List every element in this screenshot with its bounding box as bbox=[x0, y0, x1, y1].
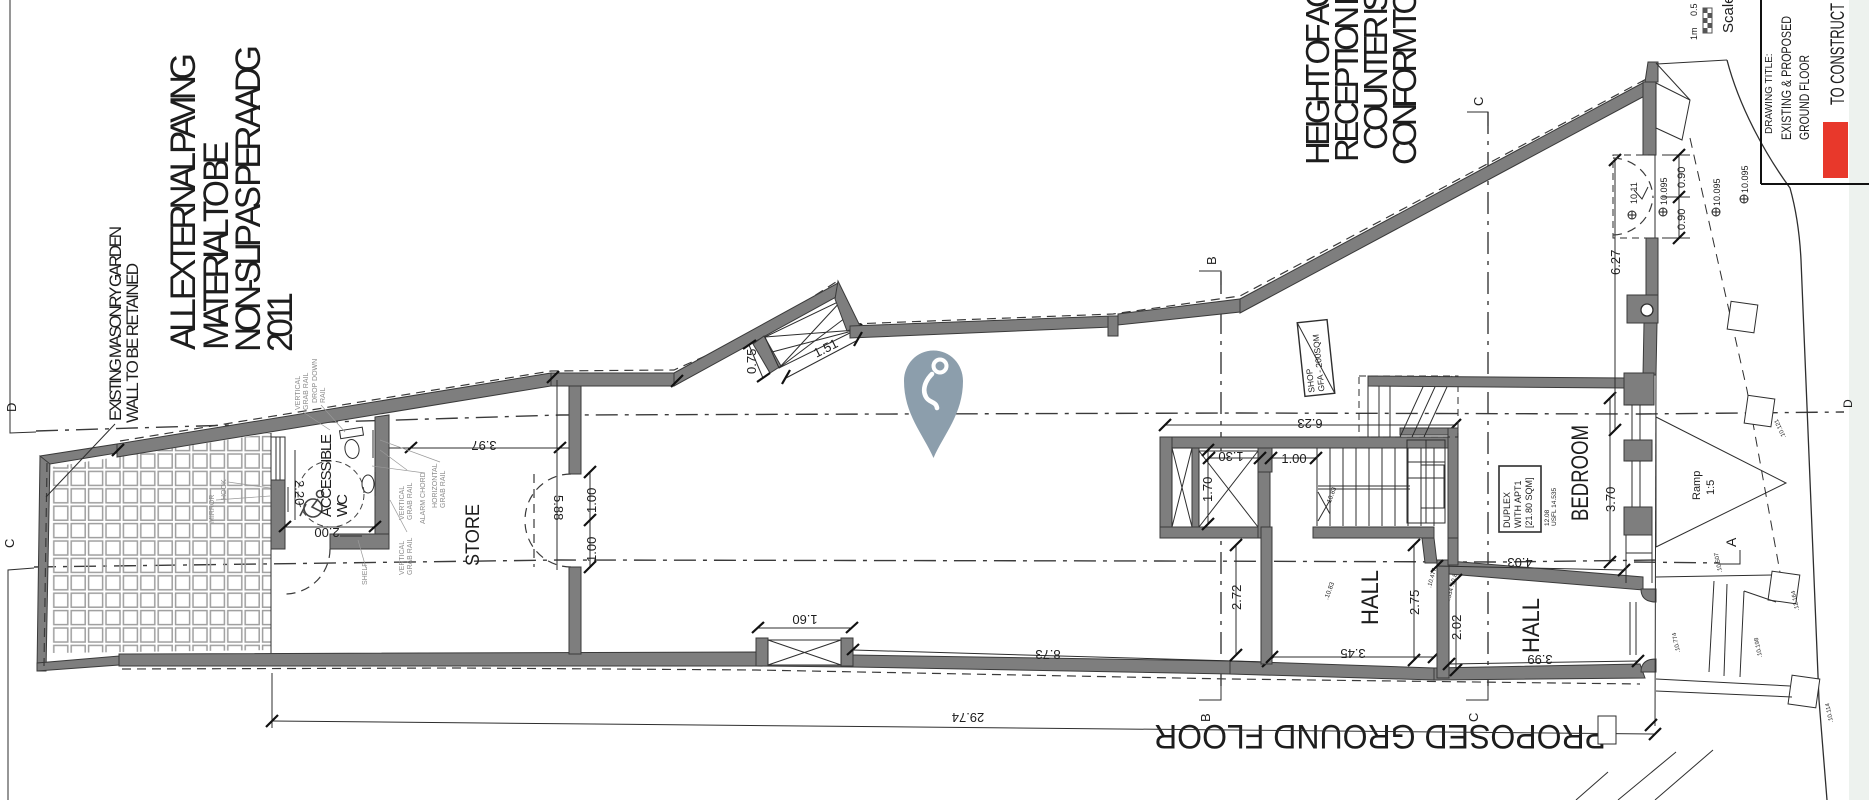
svg-text:10.095: 10.095 bbox=[1712, 178, 1722, 206]
svg-text:Scale: Scale bbox=[1720, 0, 1737, 33]
svg-text:HALL: HALL bbox=[1518, 598, 1545, 653]
svg-text:VERTICAL: VERTICAL bbox=[399, 541, 406, 575]
svg-text:1.60: 1.60 bbox=[792, 612, 817, 627]
svg-text:GRAB RAIL: GRAB RAIL bbox=[407, 538, 414, 575]
svg-text:D: D bbox=[4, 403, 19, 412]
svg-text:A: A bbox=[1723, 537, 1739, 547]
svg-text:WALL TO BE RETAINED: WALL TO BE RETAINED bbox=[123, 263, 142, 423]
svg-text:HOOK: HOOK bbox=[221, 479, 228, 500]
svg-text:4.03: 4.03 bbox=[1507, 555, 1532, 570]
svg-text:0.5: 0.5 bbox=[1689, 3, 1699, 16]
svg-text:TO CONSTRUCT: TO CONSTRUCT bbox=[1828, 3, 1849, 105]
svg-text:BEDROOM: BEDROOM bbox=[1567, 425, 1594, 521]
svg-text:ACCESSIBLE: ACCESSIBLE bbox=[318, 434, 335, 517]
svg-text:C: C bbox=[1471, 97, 1486, 106]
svg-text:2.72: 2.72 bbox=[1229, 585, 1244, 610]
svg-text:3.45: 3.45 bbox=[1340, 646, 1365, 661]
svg-text:2011: 2011 bbox=[261, 292, 300, 352]
svg-text:DRAWING TITLE:: DRAWING TITLE: bbox=[1764, 53, 1775, 134]
svg-text:GRAB RAIL: GRAB RAIL bbox=[303, 373, 310, 410]
svg-text:RAIL: RAIL bbox=[320, 387, 327, 403]
svg-text:HALL: HALL bbox=[1357, 570, 1384, 625]
svg-text:0.75: 0.75 bbox=[744, 349, 759, 374]
svg-text:ALARM CHORD: ALARM CHORD bbox=[420, 472, 427, 524]
svg-text:10.095: 10.095 bbox=[1740, 165, 1750, 193]
svg-text:2.20: 2.20 bbox=[292, 480, 307, 505]
svg-text:2.00: 2.00 bbox=[314, 525, 339, 540]
svg-text:B: B bbox=[1204, 256, 1219, 265]
svg-text:GROUND FLOOR: GROUND FLOOR bbox=[1797, 55, 1812, 140]
svg-text:Ramp: Ramp bbox=[1691, 471, 1703, 500]
svg-text:1:5: 1:5 bbox=[1705, 480, 1717, 495]
svg-text:WC: WC bbox=[334, 494, 351, 517]
svg-text:1m: 1m bbox=[1689, 27, 1699, 40]
svg-text:VERTICAL: VERTICAL bbox=[295, 376, 302, 410]
svg-text:10.095: 10.095 bbox=[1659, 177, 1669, 205]
svg-text:GRAB RAIL: GRAB RAIL bbox=[440, 471, 447, 508]
svg-text:GRAB RAIL: GRAB RAIL bbox=[407, 483, 414, 520]
svg-text:29.74: 29.74 bbox=[952, 710, 985, 725]
svg-text:[21.80 SQM]: [21.80 SQM] bbox=[1524, 477, 1534, 528]
svg-text:1.00: 1.00 bbox=[584, 537, 599, 562]
svg-text:2.75: 2.75 bbox=[1407, 590, 1422, 615]
svg-text:C: C bbox=[2, 539, 17, 548]
svg-text:EXISTING & PROPOSED: EXISTING & PROPOSED bbox=[1779, 16, 1794, 140]
svg-text:0.90: 0.90 bbox=[1676, 209, 1688, 230]
svg-text:3.97: 3.97 bbox=[471, 438, 496, 453]
svg-text:1.00: 1.00 bbox=[584, 488, 599, 513]
svg-text:3.99: 3.99 bbox=[1527, 652, 1552, 667]
svg-text:D: D bbox=[1841, 399, 1855, 408]
svg-text:1.00: 1.00 bbox=[1281, 451, 1306, 466]
svg-text:8.73: 8.73 bbox=[1035, 647, 1060, 662]
svg-text:WITH APT1: WITH APT1 bbox=[1513, 480, 1523, 528]
svg-text:6.23: 6.23 bbox=[1297, 416, 1322, 431]
svg-text:DUPLEX: DUPLEX bbox=[1502, 492, 1512, 528]
svg-text:VERTICAL: VERTICAL bbox=[399, 486, 406, 520]
svg-text:1.70: 1.70 bbox=[1200, 477, 1215, 502]
svg-text:0.90: 0.90 bbox=[1676, 167, 1688, 188]
svg-text:2.02: 2.02 bbox=[1449, 615, 1464, 640]
svg-text:10.11: 10.11 bbox=[1629, 182, 1639, 204]
svg-text:HORIZONTAL: HORIZONTAL bbox=[432, 463, 439, 508]
svg-text:USFL 14.535: USFL 14.535 bbox=[1551, 488, 1558, 526]
svg-text:CONFORM TO AAD: CONFORM TO AAD bbox=[1386, 0, 1423, 165]
svg-text:DROP DOWN: DROP DOWN bbox=[312, 359, 319, 403]
svg-text:6.27: 6.27 bbox=[1608, 250, 1623, 275]
svg-text:3.70: 3.70 bbox=[1603, 487, 1618, 512]
svg-text:5.88: 5.88 bbox=[551, 495, 566, 520]
svg-text:PROPOSED GROUND FLOOR: PROPOSED GROUND FLOOR bbox=[1154, 717, 1606, 755]
svg-text:1.30: 1.30 bbox=[1218, 449, 1243, 464]
svg-text:MIRROR: MIRROR bbox=[209, 495, 216, 523]
svg-text:STORE: STORE bbox=[463, 504, 484, 566]
svg-text:12.08: 12.08 bbox=[1544, 509, 1551, 526]
